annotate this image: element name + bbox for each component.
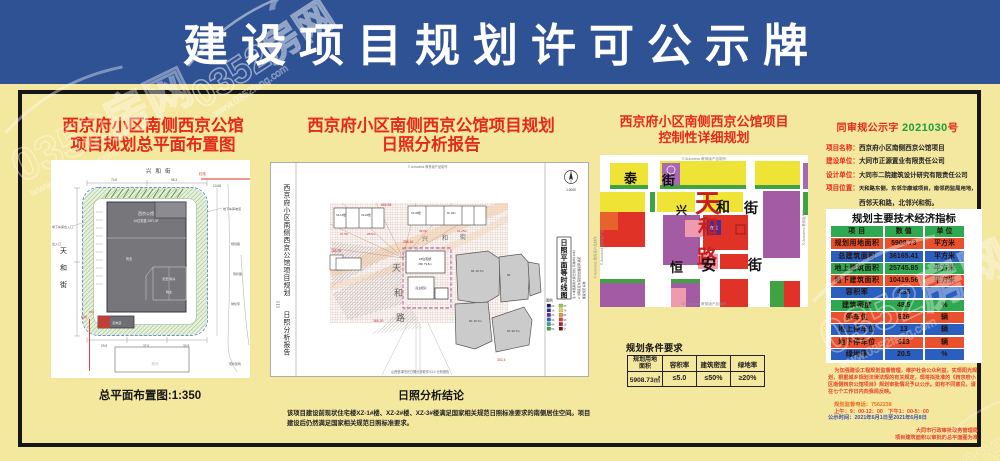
svg-text:0352房网: 0352房网: [3, 60, 200, 192]
svg-text:0352房网: 0352房网: [184, 0, 342, 117]
svg-text:0352房网: 0352房网: [812, 232, 1000, 366]
svg-text:0352: 0352: [957, 425, 1000, 461]
